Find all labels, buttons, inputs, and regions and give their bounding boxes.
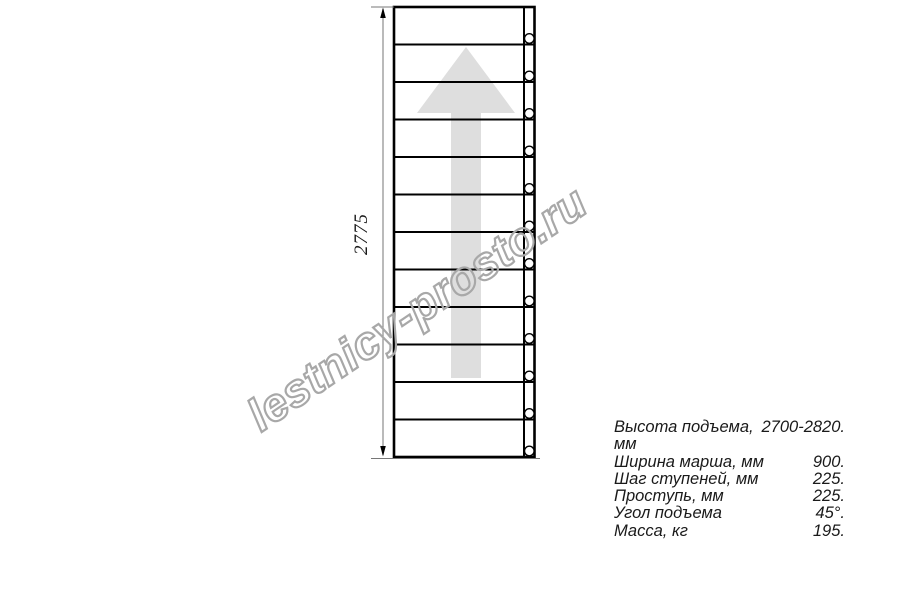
spec-value: 225.	[813, 488, 845, 505]
screw-hole	[525, 146, 535, 156]
spec-list: Высота подъема, мм2700-2820.Ширина марша…	[614, 419, 845, 540]
spec-value: 195.	[813, 523, 845, 540]
screw-hole	[525, 371, 535, 381]
dimension-arrowhead	[380, 8, 386, 19]
direction-arrow	[417, 47, 515, 378]
spec-label: Высота подъема, мм	[614, 419, 762, 454]
screw-hole	[525, 221, 535, 231]
screw-hole	[525, 109, 535, 119]
dimension-arrowhead	[380, 446, 386, 457]
drawing-canvas: 2775 lestnicy-prosto.ru Высота подъема, …	[0, 0, 900, 600]
screw-hole	[525, 446, 535, 456]
dimension-label: 2775	[351, 213, 372, 255]
screw-hole	[525, 34, 535, 44]
spec-value: 225.	[813, 471, 845, 488]
screw-hole	[525, 259, 535, 269]
spec-label: Шаг ступеней, мм	[614, 471, 758, 488]
spec-row: Масса, кг195.	[614, 523, 845, 540]
spec-label: Проступь, мм	[614, 488, 724, 505]
spec-row: Угол подъема45°.	[614, 505, 845, 522]
screw-hole	[525, 296, 535, 306]
screw-hole	[525, 71, 535, 81]
spec-label: Ширина марша, мм	[614, 454, 764, 471]
spec-row: Проступь, мм225.	[614, 488, 845, 505]
spec-value: 2700-2820.	[762, 419, 846, 454]
spec-value: 900.	[813, 454, 845, 471]
spec-label: Угол подъема	[614, 505, 722, 522]
screw-hole	[525, 184, 535, 194]
spec-row: Высота подъема, мм2700-2820.	[614, 419, 845, 454]
spec-row: Ширина марша, мм900.	[614, 454, 845, 471]
spec-label: Масса, кг	[614, 523, 688, 540]
spec-row: Шаг ступеней, мм225.	[614, 471, 845, 488]
screw-hole	[525, 409, 535, 419]
spec-value: 45°.	[815, 505, 845, 522]
screw-hole	[525, 334, 535, 344]
